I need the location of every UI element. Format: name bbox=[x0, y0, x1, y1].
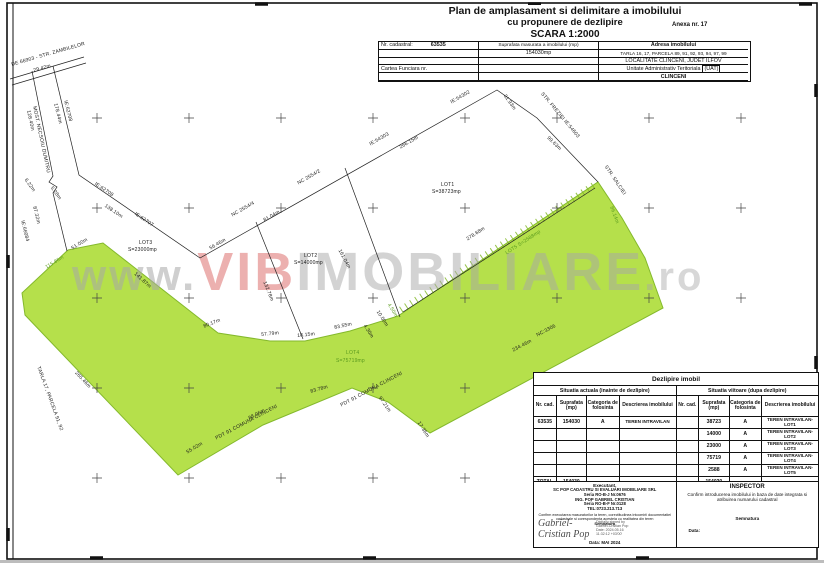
map-label: 4.50m bbox=[386, 303, 398, 318]
cell-nsup: 14000 bbox=[698, 429, 728, 440]
map-label: 83.78m bbox=[310, 385, 329, 395]
uat-label: Unitate Administrativ Teritoriala bbox=[627, 66, 701, 72]
cell-ndesc: TEREN INTRAVILAN-LOT4 bbox=[761, 453, 818, 464]
dezlipire-subheaders: Situatia actuala (inainte de dezlipire) … bbox=[534, 386, 818, 396]
map-label: 266.15m bbox=[399, 136, 420, 151]
dezlipire-row: 14000ATEREN INTRAVILAN-LOT2 bbox=[534, 429, 818, 441]
dezlipire-row: 2588ATEREN INTRAVILAN-LOT5 bbox=[534, 465, 818, 477]
nr-cadastral-cell: Nr. cadastral: 63535 bbox=[379, 42, 479, 50]
map-label: 278.68m bbox=[466, 227, 486, 243]
cell-nnr bbox=[676, 453, 699, 464]
cell-onr bbox=[534, 441, 556, 452]
map-label: 115.86m bbox=[45, 255, 65, 270]
scale-label: SCARA 1:2000 bbox=[400, 29, 730, 40]
map-label: 57.79m bbox=[261, 331, 279, 338]
map-label: IE:54303 bbox=[369, 132, 390, 147]
street-zambilelor-line bbox=[10, 57, 86, 85]
inspector-confirm-text: Confirm introducerea imobilului in baza … bbox=[677, 490, 819, 502]
empty-cell bbox=[479, 65, 599, 73]
anexa-label: Anexa nr. 17 bbox=[672, 22, 707, 28]
cell-nsup: 23000 bbox=[698, 441, 728, 452]
empty-cell bbox=[379, 73, 479, 81]
nr-cadastral-value: 63535 bbox=[431, 42, 446, 48]
digital-signature-details: Digitally signed byGabriel-Cristian PopD… bbox=[596, 520, 646, 537]
dezlipire-column-headers: Nr. cad.Suprafata (mp)Categoria de folos… bbox=[534, 396, 818, 417]
column-header: Suprafata (mp) bbox=[698, 396, 728, 416]
situatia-actuala-header: Situatia actuala (inainte de dezlipire) bbox=[534, 386, 677, 395]
cell-ocat: A bbox=[586, 417, 618, 428]
cell-nnr bbox=[676, 441, 699, 452]
map-label: S=38723mp bbox=[432, 190, 461, 195]
watermark-prefix: www. bbox=[72, 251, 197, 301]
cell-ndesc: TEREN INTRAVILAN-LOT3 bbox=[761, 441, 818, 452]
uat-cell: Unitate Administrativ Teritoriala (UAT) bbox=[599, 65, 748, 73]
dezlipire-row: 63535154030ATEREN INTRAVILAN38723ATEREN … bbox=[534, 417, 818, 429]
cell-osup: 154030 bbox=[556, 417, 586, 428]
uat-tag: (UAT) bbox=[702, 65, 720, 72]
cell-nnr bbox=[676, 465, 699, 476]
cell-ncat: A bbox=[729, 417, 761, 428]
cell-odesc bbox=[619, 429, 676, 440]
cell-ocat bbox=[586, 441, 618, 452]
map-label: NC 2554/4 bbox=[231, 201, 256, 218]
dezlipire-rows: 63535154030ATEREN INTRAVILAN38723ATEREN … bbox=[534, 417, 818, 477]
map-label: 138.10m bbox=[103, 204, 123, 220]
map-label: 128.40m bbox=[25, 110, 34, 131]
cell-ndesc: TEREN INTRAVILAN-LOT1 bbox=[761, 417, 818, 428]
map-label: 86.14m bbox=[608, 206, 619, 225]
map-label: 97.21m bbox=[377, 396, 391, 414]
map-label: 4.30m bbox=[362, 324, 374, 339]
cell-osup bbox=[556, 453, 586, 464]
executant-date: Data: MAI 2024 bbox=[534, 540, 676, 545]
cell-nnr bbox=[676, 417, 699, 428]
column-header: Descrierea imobilului bbox=[619, 396, 676, 416]
map-label: 234.46m bbox=[512, 339, 533, 353]
map-label: LOT4 bbox=[346, 351, 359, 356]
column-header: Suprafata (mp) bbox=[556, 396, 586, 416]
cell-odesc: TEREN INTRAVILAN bbox=[619, 417, 676, 428]
cell-onr bbox=[534, 465, 556, 476]
watermark: www.VIBIMOBILIARE.ro bbox=[72, 241, 704, 303]
map-label: 5.28m bbox=[49, 186, 62, 201]
map-label: IE:62708 bbox=[93, 182, 114, 198]
adresa-label: Adresa imobilului bbox=[599, 42, 748, 50]
cartea-funciara-label: Cartea Funciara nr. bbox=[379, 65, 479, 73]
map-label: 99.63m bbox=[546, 136, 562, 152]
map-label: STR. SALCIEI bbox=[603, 165, 626, 196]
cadastral-header-table: Nr. cadastral: 63535 Suprafata masurata … bbox=[378, 41, 751, 82]
map-label: PDT 91 COMUNA CLINCENI bbox=[215, 404, 279, 441]
empty-cell bbox=[479, 58, 599, 66]
map-label: IE:62707 bbox=[133, 212, 154, 228]
cell-ocat bbox=[586, 465, 618, 476]
suprafata-label: Suprafata masurata a imobilului (mp) bbox=[479, 42, 599, 50]
page-title: Plan de amplasament si delimitare a imob… bbox=[400, 5, 730, 17]
map-label: PDT 91 COMUNA CLINCENI bbox=[340, 371, 404, 408]
map-label: 265.46m bbox=[73, 371, 91, 390]
map-label: 83.55m bbox=[334, 322, 353, 331]
watermark-accent: VIB bbox=[197, 241, 296, 303]
empty-cell bbox=[379, 58, 479, 66]
cell-onr bbox=[534, 453, 556, 464]
inspector-semnatura-label: Semnatura bbox=[677, 516, 819, 521]
cell-nsup: 2588 bbox=[698, 465, 728, 476]
adresa-line1: TARLA 16, 17, PARCELA 89, 91, 92, 93, 94… bbox=[599, 50, 748, 58]
watermark-suffix: .ro bbox=[644, 255, 704, 300]
dezlipire-row: 23000ATEREN INTRAVILAN-LOT3 bbox=[534, 441, 818, 453]
map-label: 55.02m bbox=[186, 442, 204, 456]
inspector-panel: INSPECTOR Confirm introducerea imobilulu… bbox=[677, 482, 819, 547]
map-label: 17.36m bbox=[416, 421, 430, 439]
empty-cell bbox=[379, 50, 479, 58]
executant-details: SC POP CADASTRU SI EVALUARI IMOBILIARE S… bbox=[534, 488, 676, 512]
north-boundary-line bbox=[53, 66, 598, 258]
dezlipire-title: Dezlipire imobil bbox=[534, 373, 818, 386]
inspector-date-label: Data: bbox=[689, 528, 701, 533]
cell-ocat bbox=[586, 453, 618, 464]
map-label: 29.42m bbox=[33, 64, 52, 74]
suprafata-value: 154030mp bbox=[479, 50, 599, 58]
empty-cell bbox=[479, 73, 599, 81]
cell-odesc bbox=[619, 465, 676, 476]
dezlipire-table: Dezlipire imobil Situatia actuala (inain… bbox=[533, 372, 819, 489]
cell-ocat bbox=[586, 429, 618, 440]
cell-ncat: A bbox=[729, 441, 761, 452]
watermark-rest: IMOBILIARE bbox=[296, 241, 644, 303]
map-label: 81.04m bbox=[263, 210, 281, 223]
cell-osup bbox=[556, 465, 586, 476]
map-label: IE:66084 bbox=[19, 220, 29, 242]
signature-box: Executant, SC POP CADASTRU SI EVALUARI I… bbox=[533, 481, 819, 548]
map-label: 10.00m bbox=[375, 310, 389, 328]
map-label: 178.44m bbox=[52, 103, 62, 124]
column-header: Nr. cad. bbox=[534, 396, 556, 416]
cell-nsup: 75719 bbox=[698, 453, 728, 464]
column-header: Descrierea imobilului bbox=[761, 396, 818, 416]
adresa-line2: LOCALITATE CLINCENI, JUDET ILFOV bbox=[599, 58, 748, 66]
cell-onr: 63535 bbox=[534, 417, 556, 428]
cell-odesc bbox=[619, 453, 676, 464]
cell-ncat: A bbox=[729, 465, 761, 476]
map-label: IE:54302 bbox=[450, 90, 471, 105]
map-label: NC:3306 bbox=[536, 324, 557, 338]
map-label: 6.22m bbox=[23, 178, 36, 193]
digital-signature-name: Gabriel-Cristian Pop bbox=[538, 518, 592, 540]
map-label: 18.15m bbox=[297, 332, 315, 339]
map-label: IE:62708 bbox=[62, 100, 72, 122]
west-boundary-line bbox=[32, 71, 67, 251]
cell-ndesc: TEREN INTRAVILAN-LOT5 bbox=[761, 465, 818, 476]
column-header: Categoria de folosinta bbox=[729, 396, 761, 416]
nr-cadastral-label: Nr. cadastral: bbox=[381, 42, 413, 48]
situatia-viitoare-header: Situatia viitoare (dupa dezlipire) bbox=[677, 386, 819, 395]
map-label: 31.93m bbox=[502, 94, 516, 112]
cell-osup bbox=[556, 429, 586, 440]
map-label: MOST. NECSOIU DUMITRU bbox=[31, 106, 50, 174]
column-header: Nr. cad. bbox=[676, 396, 699, 416]
map-label: 80.17m bbox=[203, 318, 221, 329]
cell-odesc bbox=[619, 441, 676, 452]
cell-ncat: A bbox=[729, 429, 761, 440]
map-label: STR. FREZIEI IE:54603 bbox=[539, 92, 580, 139]
cell-ndesc: TEREN INTRAVILAN-LOT2 bbox=[761, 429, 818, 440]
map-label: 87.32m bbox=[31, 206, 40, 225]
map-label: 88.06m bbox=[248, 409, 266, 422]
executant-panel: Executant, SC POP CADASTRU SI EVALUARI I… bbox=[534, 482, 677, 547]
cell-nsup: 38723 bbox=[698, 417, 728, 428]
cell-onr bbox=[534, 429, 556, 440]
map-label: S=75719mp bbox=[336, 359, 365, 364]
map-label: DE 66903 - STR. ZAMBILELOR bbox=[11, 42, 86, 68]
cell-ncat: A bbox=[729, 453, 761, 464]
cell-nnr bbox=[676, 429, 699, 440]
column-header: Categoria de folosinta bbox=[586, 396, 618, 416]
cadastral-plan-page: www.VIBIMOBILIARE.ro DE 66903 - STR. ZAM… bbox=[0, 0, 824, 563]
dezlipire-row: 75719ATEREN INTRAVILAN-LOT4 bbox=[534, 453, 818, 465]
cell-osup bbox=[556, 441, 586, 452]
map-label: NC 2554/2 bbox=[297, 169, 322, 186]
map-label: LOT1 bbox=[441, 183, 454, 188]
uat-value: CLINCENI bbox=[599, 73, 748, 81]
map-label: TARLA 17, PARCELA 91, 92 bbox=[35, 366, 63, 432]
